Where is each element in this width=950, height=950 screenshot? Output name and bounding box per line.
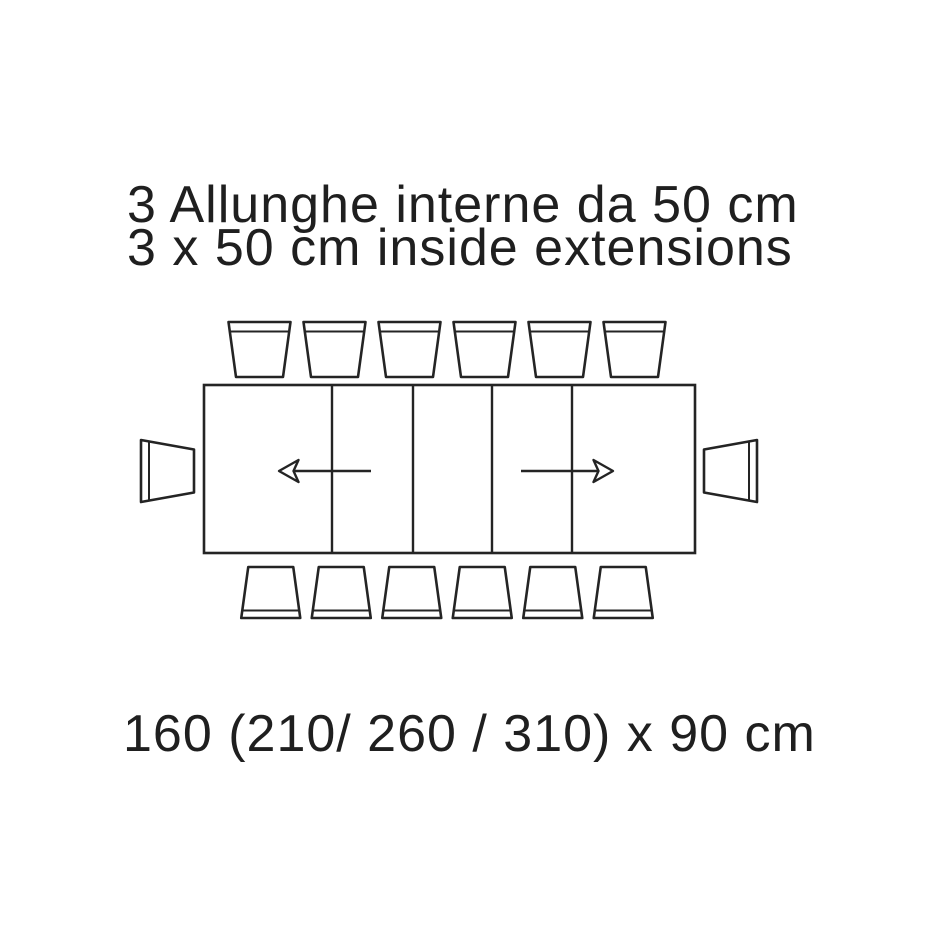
dimensions-label: 160 (210/ 260 / 310) x 90 cm (123, 708, 816, 760)
chair-top (379, 322, 441, 377)
chair-top (304, 322, 366, 377)
chair-top (529, 322, 591, 377)
table-top-view-diagram (0, 0, 950, 950)
product-spec-page: 3 Allunghe interne da 50 cm 3 x 50 cm in… (0, 0, 950, 950)
chair-top (604, 322, 666, 377)
table-top (204, 385, 695, 553)
chair-top (454, 322, 516, 377)
chair-top (229, 322, 291, 377)
